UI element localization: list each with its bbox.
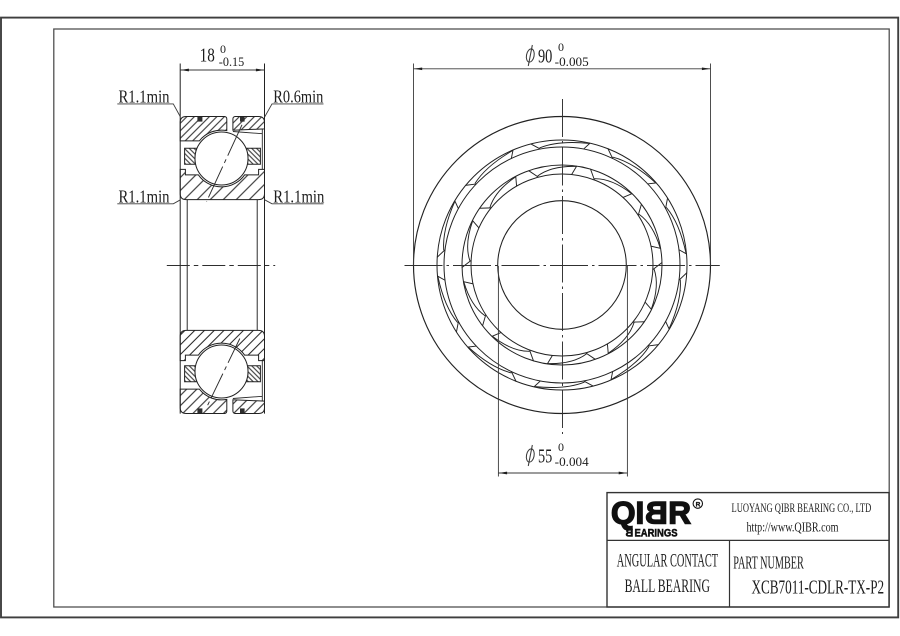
svg-text:PART NUMBER: PART NUMBER <box>733 552 804 572</box>
svg-text:B: B <box>625 527 633 539</box>
svg-text:R: R <box>668 495 691 531</box>
svg-text:0: 0 <box>558 440 564 454</box>
svg-text:-0.15: -0.15 <box>219 55 244 69</box>
svg-text:R0.6min: R0.6min <box>273 86 323 106</box>
svg-text:R1.1min: R1.1min <box>119 86 170 106</box>
svg-text:90: 90 <box>538 45 552 67</box>
svg-text:18: 18 <box>200 44 215 66</box>
svg-text:LUOYANG QIBR BEARING CO., LTD: LUOYANG QIBR BEARING CO., LTD <box>732 500 872 515</box>
svg-text:QI: QI <box>611 495 644 531</box>
svg-text:55: 55 <box>538 445 552 467</box>
svg-text:B: B <box>645 495 668 531</box>
svg-text:EARINGS: EARINGS <box>635 527 678 539</box>
svg-text:http://www.QIBR.com: http://www.QIBR.com <box>747 519 839 534</box>
svg-text:0: 0 <box>558 40 564 54</box>
svg-text:BALL BEARING: BALL BEARING <box>625 576 710 597</box>
svg-text:-0.004: -0.004 <box>555 455 590 469</box>
svg-text:ANGULAR CONTACT: ANGULAR CONTACT <box>617 550 719 571</box>
svg-text:R: R <box>696 502 701 509</box>
svg-text:XCB7011-CDLR-TX-P2: XCB7011-CDLR-TX-P2 <box>752 578 885 599</box>
svg-text:-0.005: -0.005 <box>555 55 589 69</box>
